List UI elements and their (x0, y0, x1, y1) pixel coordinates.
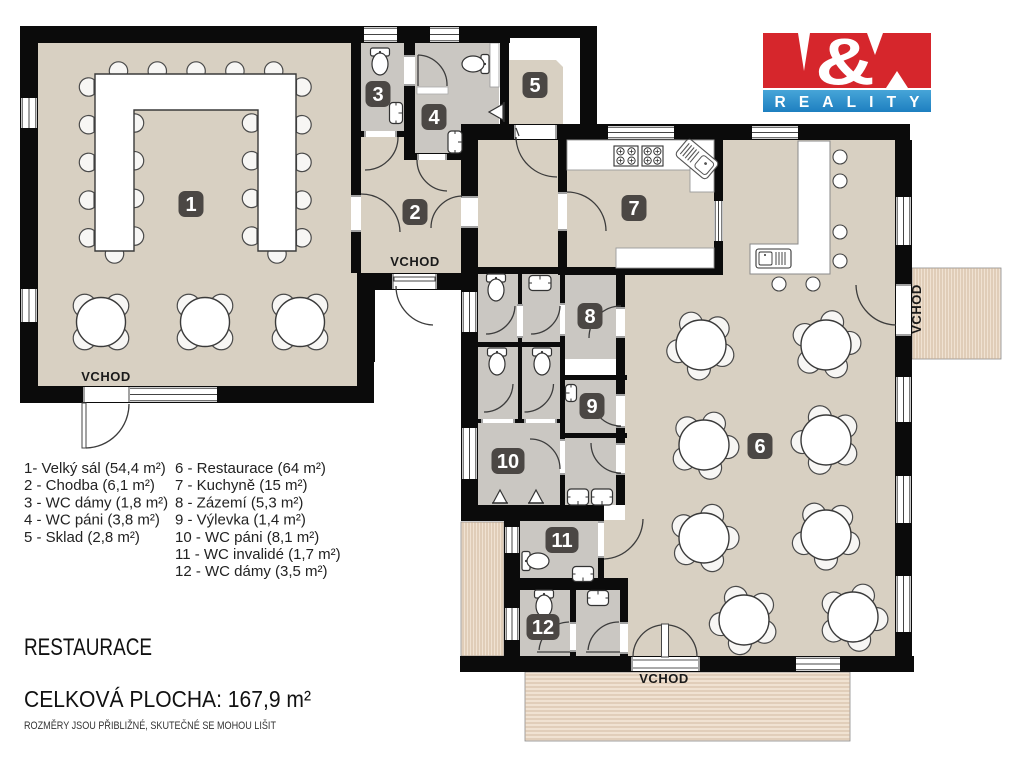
svg-text:3: 3 (372, 84, 383, 106)
svg-text:VCHOD: VCHOD (639, 671, 688, 686)
svg-text:7: 7 (628, 198, 639, 220)
svg-text:8 - Zázemí (5,3 m²): 8 - Zázemí (5,3 m²) (175, 494, 303, 511)
svg-text:10: 10 (497, 451, 519, 473)
svg-text:5: 5 (529, 75, 540, 97)
svg-text:RESTAURACE: RESTAURACE (24, 634, 152, 661)
svg-text:3 - WC dámy (1,8 m²): 3 - WC dámy (1,8 m²) (24, 494, 168, 511)
svg-text:11 - WC invalidé (1,7 m²): 11 - WC invalidé (1,7 m²) (175, 546, 341, 563)
svg-text:VCHOD: VCHOD (81, 369, 130, 384)
svg-text:10 - WC páni (8,1 m²): 10 - WC páni (8,1 m²) (175, 529, 319, 546)
svg-text:2 - Chodba (6,1 m²): 2 - Chodba (6,1 m²) (24, 477, 155, 494)
svg-text:4: 4 (428, 107, 440, 129)
svg-text:VCHOD: VCHOD (390, 254, 439, 269)
svg-text:&: & (815, 24, 875, 98)
svg-text:8: 8 (584, 306, 595, 328)
svg-text:12: 12 (532, 617, 554, 639)
svg-text:9: 9 (586, 396, 597, 418)
svg-text:5 - Sklad (2,8 m²): 5 - Sklad (2,8 m²) (24, 529, 140, 546)
svg-text:6: 6 (754, 436, 765, 458)
svg-text:4 - WC páni (3,8 m²): 4 - WC páni (3,8 m²) (24, 512, 160, 529)
svg-text:1: 1 (185, 194, 196, 216)
svg-text:1- Velký sál (54,4 m²): 1- Velký sál (54,4 m²) (24, 460, 166, 477)
svg-text:7 - Kuchyně (15 m²): 7 - Kuchyně (15 m²) (175, 477, 308, 494)
svg-text:12 - WC dámy (3,5 m²): 12 - WC dámy (3,5 m²) (175, 563, 328, 580)
svg-text:2: 2 (409, 202, 420, 224)
svg-text:6 - Restaurace (64 m²): 6 - Restaurace (64 m²) (175, 460, 326, 477)
svg-text:CELKOVÁ PLOCHA: 167,9 m²: CELKOVÁ PLOCHA: 167,9 m² (24, 686, 311, 712)
svg-text:11: 11 (551, 530, 572, 552)
svg-text:9 - Výlevka (1,4 m²): 9 - Výlevka (1,4 m²) (175, 512, 306, 529)
svg-text:ROZMĚRY JSOU PŘIBLIŽNÉ, SKUTEČ: ROZMĚRY JSOU PŘIBLIŽNÉ, SKUTEČNÉ SE MOHO… (24, 719, 276, 732)
